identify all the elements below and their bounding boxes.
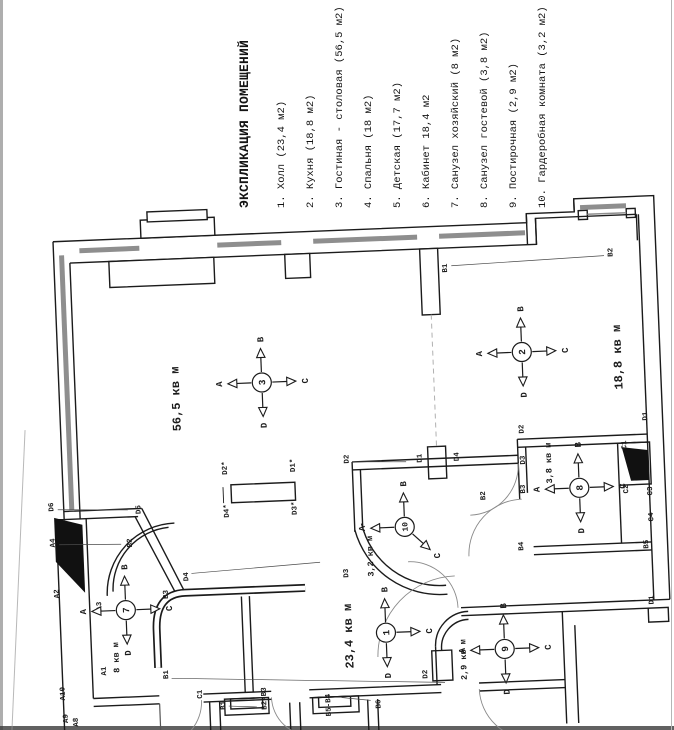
wall-label: A10 [59,686,68,700]
compass-direction-label: C [561,347,571,353]
wall-label: B5 [643,539,651,549]
room-number-label: 8 [575,484,586,490]
compass-direction-label: D [520,391,530,397]
compass-arrowhead-icon [576,513,585,522]
compass-arrowhead-icon [228,379,237,388]
wall-label: B2 [607,247,615,257]
wall-label: D3* [291,501,300,515]
wall-label: D1* [290,458,299,472]
compass-arrowhead-icon [380,599,389,608]
compass-arrowhead-icon [471,646,480,655]
wall-label: D3 [520,455,528,465]
wall-label: D2 [343,454,351,464]
wall-label: B3 [520,484,528,494]
wall-label: D5 [135,504,143,514]
wall-label: D2* [222,461,231,475]
compass-arrowhead-icon [120,576,129,585]
wall-label: D2 [422,669,430,679]
compass-arrowhead-icon [287,377,296,386]
compass-direction-label: D [384,672,394,678]
wall-label: D1 [648,595,656,605]
leader-line [191,562,320,573]
compass-direction-label: D [502,688,512,694]
compass-direction-label: A [475,350,485,356]
door-arcs [149,463,534,730]
wall-label: B1 [442,263,450,273]
wall-label: B2-B3 [261,687,270,710]
plan-annotations: B1B2D2D1D4B2D3D1D2D3B3B4C1C2C3C4B5D1D2D6… [39,246,664,727]
wall-key-compass [369,492,430,552]
leader-line [342,696,371,701]
compass-arrowhead-icon [499,615,508,624]
compass-direction-label: B [380,586,390,592]
room-area-label: 23,4 кв м [341,604,358,669]
compass-direction-label: A [358,525,368,531]
room-area-label: 2,9 кв м [458,639,470,680]
compass-direction-label: B [256,336,266,342]
wall-label: B1 [220,700,228,710]
wall-label: B1 [163,669,171,679]
wall-label: D1 [416,453,424,463]
wall-label: C1 [197,689,205,699]
room-number-label: 3 [257,379,268,385]
compass-arrowhead-icon [547,346,556,355]
compass-direction-label: C [425,627,435,633]
scanned-floor-plan-page: ЭКСПЛИКАЦИЯ ПОМЕЩЕНИЙ 1. Холл (23,4 м2)2… [0,0,674,730]
room-area-label: 3,2 кв м [365,536,377,577]
compass-direction-label: A [458,647,468,653]
wall-label: A9 [63,713,71,723]
compass-direction-label: D [260,422,270,428]
wall-label: D4 [453,452,461,462]
room-number-label: 1 [381,629,392,635]
compass-direction-label: C [165,605,175,611]
compass-direction-label: A [532,486,542,492]
wall-label: B2 [480,490,488,500]
leader-line [451,256,604,266]
compass-direction-label: C [433,552,443,558]
compass-arrowhead-icon [488,349,497,358]
compass-direction-label: B [516,306,526,312]
room-number-label: 9 [500,646,511,652]
wall-label: C3 [647,486,655,496]
room-area-label: 8 кв м [111,642,122,673]
compass-arrowhead-icon [259,407,268,416]
compass-arrowhead-icon [411,627,420,636]
room-area-label: 56,5 кв м [168,366,185,431]
room-area-label: 18,8 кв м [610,324,627,389]
compass-arrowhead-icon [574,454,583,463]
wall-label: B6 [375,699,383,709]
compass-arrowhead-icon [516,318,525,327]
compass-direction-label: D [124,650,134,656]
compass-direction-label: C [618,483,628,489]
wall-label: D4 [183,571,191,581]
room-area-label: 3,8 кв м [543,442,555,483]
wall-label: C4 [648,512,656,522]
wall-label: B2 [127,538,135,548]
room-number-label: 10 [401,522,410,532]
wall-label: A8 [73,717,81,727]
compass-arrowhead-icon [604,482,613,491]
compass-direction-label: C [544,644,554,650]
wall-label: B3 [163,589,171,599]
wall-label: C1 [621,440,629,450]
compass-direction-label: B [574,441,584,447]
wall-label: D1 [642,411,650,421]
compass-direction-label: B [499,602,509,608]
wall-label: A2 [54,589,62,599]
wall-label: D3 [343,568,351,578]
compass-arrowhead-icon [383,658,392,667]
compass-arrowhead-icon [371,524,380,533]
compass-arrowhead-icon [399,493,408,502]
compass-arrowhead-icon [545,485,554,494]
wall-label: A1 [101,666,109,676]
wall-label: D6 [48,502,56,512]
compass-arrowhead-icon [123,635,132,644]
room-number-label: 7 [121,607,132,613]
leader-line [172,667,445,693]
light-partition-line [431,315,436,447]
compass-direction-label: A [79,608,89,614]
wall-label: D2 [518,424,526,434]
wall-label: B4 [518,541,526,551]
room-number-label: 2 [517,349,528,355]
wall-label: B5-B4 [325,693,334,716]
compass-direction-label: D [577,527,587,533]
compass-arrowhead-icon [256,348,265,357]
compass-direction-label: C [301,377,311,383]
wall-label: D4* [223,504,232,518]
compass-direction-label: B [399,480,409,486]
stub-wall [155,588,308,668]
floor-plan-svg: B1B2D2D1D4B2D3D1D2D3B3B4C1C2C3C4B5D1D2D6… [0,0,674,730]
compass-direction-label: B [120,564,130,570]
compass-arrowhead-icon [519,377,528,386]
compass-arrowhead-icon [530,643,539,652]
wall-label: A4 [50,538,58,548]
compass-direction-label: A [215,381,225,387]
